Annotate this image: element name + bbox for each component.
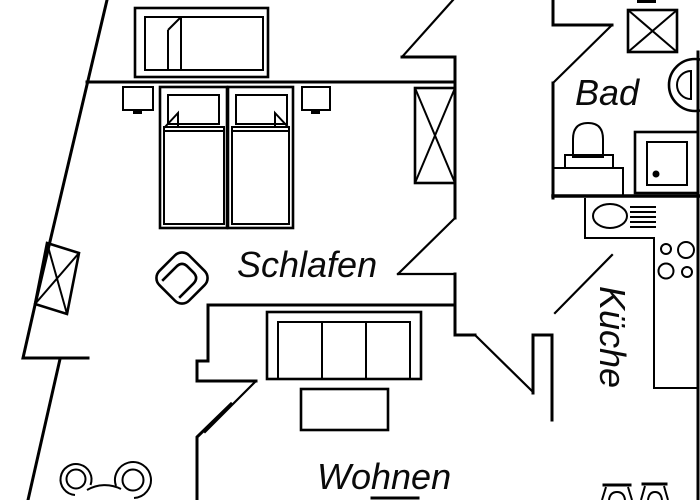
- drainer-icon: [630, 207, 656, 227]
- chair-icon: [67, 470, 86, 489]
- bed-top-icon: [135, 8, 268, 77]
- wall-bad-entry: [553, 0, 612, 25]
- door-leaf-hall: [475, 335, 533, 392]
- wall-nook-right: [197, 404, 231, 500]
- coffee-table-icon: [301, 389, 388, 430]
- kitchen-sink-icon: [593, 204, 627, 228]
- wall-hall-left: [455, 274, 475, 335]
- floor-plan: Schlafen Wohnen Bad Küche: [0, 0, 700, 500]
- chair-back-icon: [115, 462, 151, 498]
- armchair-icon: [152, 248, 211, 307]
- room-label-kueche: Küche: [592, 286, 633, 388]
- washbasin-icon: [669, 59, 700, 111]
- nightstand-left-icon: [123, 87, 153, 114]
- wall-wohnen-schlafen: [197, 305, 455, 381]
- door-leaf-schlafen: [398, 218, 455, 274]
- bed-right-icon: [228, 87, 293, 228]
- chair-bottom-2-icon: [641, 484, 668, 500]
- wall-hall-stub: [533, 335, 552, 420]
- shower-icon: [635, 132, 698, 193]
- chair-icon: [123, 470, 144, 491]
- window-schlafen-right: [415, 88, 455, 183]
- room-label-wohnen: Wohnen: [317, 456, 451, 497]
- wall-left-lower: [28, 359, 60, 500]
- chair-bottom-1-icon: [602, 485, 632, 500]
- sofa-icon: [267, 312, 421, 379]
- stove-icon: [659, 242, 695, 279]
- wall-top-stub: [637, 0, 656, 3]
- dining-set-icon: [60, 462, 150, 498]
- floor-plan-page: Schlafen Wohnen Bad Küche: [0, 0, 700, 500]
- door-leaf-top: [402, 0, 453, 57]
- room-label-schlafen: Schlafen: [237, 244, 377, 285]
- toilet-icon: [553, 123, 623, 196]
- bed-left-icon: [160, 87, 227, 228]
- nightstand-right-icon: [302, 87, 330, 114]
- window-top-right-shaft: [628, 10, 677, 52]
- room-label-bad: Bad: [575, 72, 640, 113]
